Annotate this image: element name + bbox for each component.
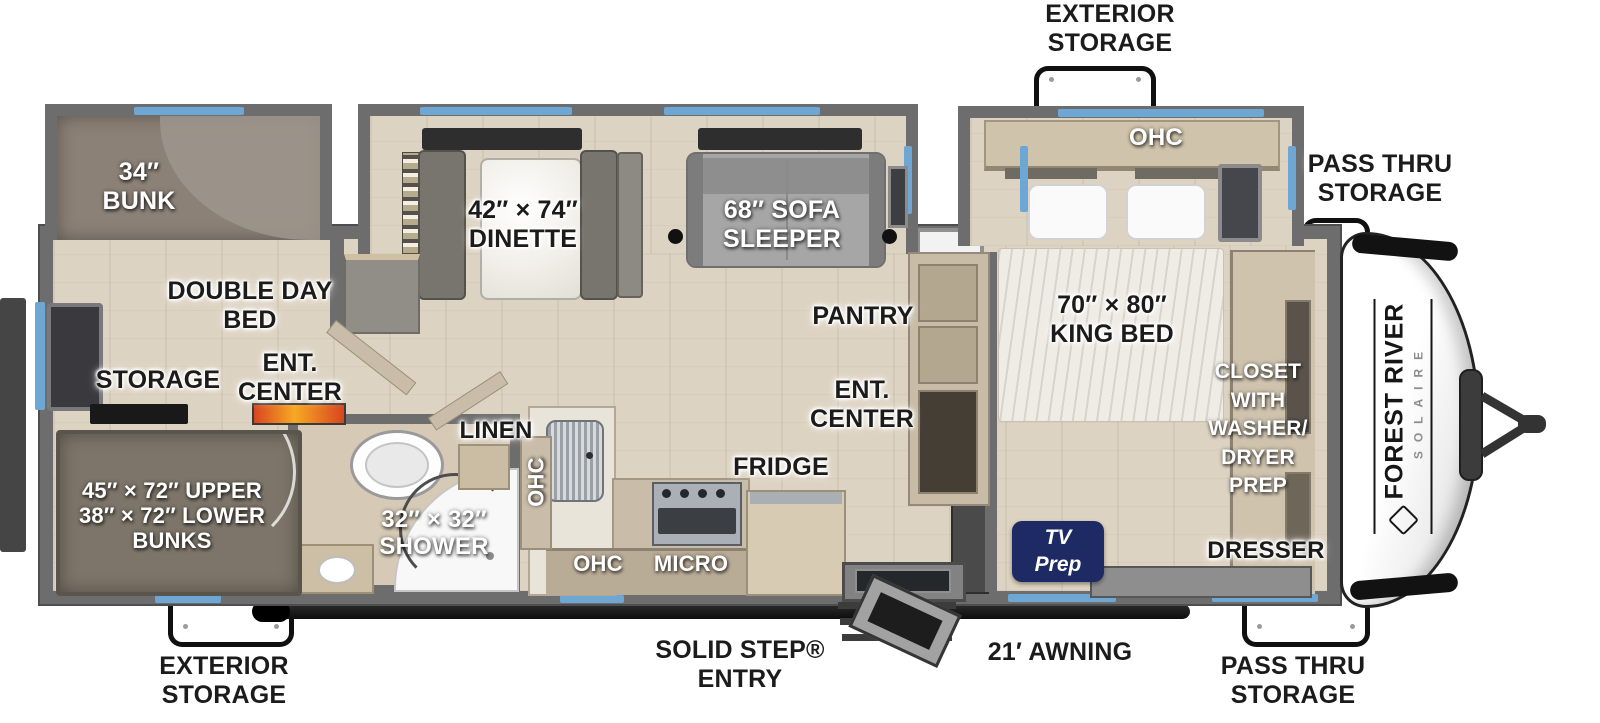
brand-rule-top [1374,300,1376,535]
pass-thru-bracket-bottom [1242,600,1370,647]
label-sofa-sleeper: 68″ SOFA SLEEPER [723,196,841,253]
dinette-window-accent-1 [420,107,572,115]
fireplace [252,403,346,425]
label-ent-center-main: ENT. CENTER [810,376,914,433]
label-dresser: DRESSER [1207,537,1324,564]
label-exterior-storage-bottom: EXTERIOR STORAGE [159,652,288,709]
brand-model: SOLAIRE [1412,343,1426,459]
burner-4 [716,489,725,498]
vanity-sink [318,556,356,584]
left-wall-window [47,303,103,411]
brand-name: FOREST RIVER [1381,303,1410,500]
label-fridge: FRIDGE [733,453,829,482]
forest-river-emblem [1387,505,1418,536]
front-cap-branding: FOREST RIVER SOLAIRE [1374,237,1433,597]
dinette-overhead-cabinet [422,128,582,150]
bottom-window-accent-1 [155,595,221,603]
label-ohc-bedroom: OHC [1129,124,1183,151]
bedroom-slide-top-accent [1058,109,1264,117]
sofa-cupholder-right [882,229,897,244]
dresser [1090,566,1312,598]
label-pass-thru-bottom: PASS THRU STORAGE [1221,652,1365,709]
sofa-overhead-cabinet [698,128,862,150]
bunk-slide-out [45,104,332,240]
bottom-window-accent-2 [560,595,624,603]
label-storage: STORAGE [96,366,221,395]
label-exterior-storage-top: EXTERIOR STORAGE [1045,0,1174,57]
label-micro: MICRO [654,551,728,576]
label-double-day-bed: DOUBLE DAY BED [168,277,333,334]
label-pantry: PANTRY [812,302,913,331]
pantry-cabinet [908,252,990,506]
burner-1 [662,489,671,498]
burner-2 [680,489,689,498]
dinette-window-accent-2 [664,107,820,115]
label-solid-step-entry: SOLID STEP® ENTRY [655,636,824,693]
burner-3 [698,489,707,498]
hitch-plate [1460,370,1482,480]
bed-pillow-right [1126,184,1206,240]
label-ent-center-bunkroom: ENT. CENTER [238,349,342,406]
label-linen: LINEN [460,417,533,444]
label-ohc-hall: OHC [523,457,548,507]
kitchen-sink [546,420,604,502]
bedroom-slide-left-accent [1020,146,1028,212]
sofa-armrest-right [869,154,884,266]
label-king-bed: 70″ × 80″ KING BED [1050,291,1174,348]
sofa-armrest-left [688,154,703,266]
label-closet-washer-dryer: CLOSET WITH WASHER/ DRYER PREP [1208,358,1307,501]
bedroom-ohc-shadow-right [1135,168,1227,179]
dinette-bench-divider [617,152,643,298]
fridge [746,490,846,596]
linen-cabinet [458,444,510,490]
label-ohc-kitchen: OHC [573,551,623,576]
kitchen-faucet [586,452,593,459]
bath-vanity [298,544,374,594]
pantry-door-1 [918,264,978,322]
bunk-slide-window-accent [134,107,244,115]
tv-prep-badge: TV Prep [1012,521,1104,582]
rear-bumper [0,298,26,552]
dinette-bench-right [580,150,618,300]
floorplan-diagram: TV Prep [0,0,1600,723]
bedroom-slide-right-accent [1288,146,1296,210]
stove [652,482,742,546]
hitch [1458,362,1550,488]
label-awning: 21′ AWNING [988,638,1133,667]
dinette-bench-left [418,150,466,300]
label-bunks: 45″ × 72″ UPPER 38″ × 72″ LOWER BUNKS [79,478,265,553]
brand-rule-bottom [1431,300,1433,535]
awning-end-cap [252,601,290,622]
oven-front [658,508,736,534]
fold-out-step-tread [867,592,942,650]
fridge-top [750,492,842,504]
pantry-door-2 [918,326,978,384]
slide-right-window [888,166,908,228]
bunkroom-tv [90,404,188,424]
sofa-cupholder-left [668,229,683,244]
ent-center-tv-inset [918,390,978,494]
label-shower: 32″ × 32″ SHOWER [379,506,488,561]
label-bunk-34: 34″ BUNK [102,158,175,215]
label-dinette: 42″ × 74″ DINETTE [468,196,578,253]
toilet-seat [365,442,429,488]
bedroom-slide-window [1218,164,1262,242]
awning-bar [260,604,1190,619]
bedroom-ohc-shadow-left [1005,168,1097,179]
left-wall-window-accent [35,302,45,410]
hitch-coupler [1518,415,1546,433]
entry-steps [838,596,960,666]
label-pass-thru-top: PASS THRU STORAGE [1308,150,1452,207]
bed-pillow-left [1028,184,1108,240]
wardrobe [344,254,420,334]
